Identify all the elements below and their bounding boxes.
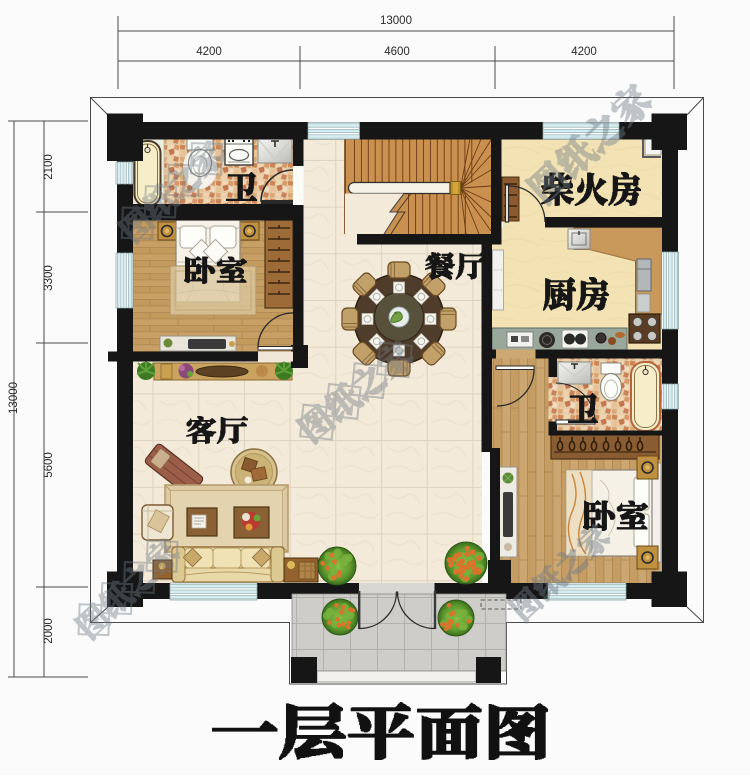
svg-text:5600: 5600 bbox=[43, 452, 55, 478]
svg-text:4200: 4200 bbox=[571, 46, 597, 58]
svg-text:4200: 4200 bbox=[196, 46, 222, 58]
svg-text:13000: 13000 bbox=[8, 382, 20, 414]
svg-text:4600: 4600 bbox=[384, 46, 410, 58]
svg-text:2000: 2000 bbox=[43, 618, 55, 644]
svg-text:13000: 13000 bbox=[380, 15, 412, 27]
svg-text:2100: 2100 bbox=[43, 154, 55, 180]
svg-text:3300: 3300 bbox=[43, 265, 55, 291]
